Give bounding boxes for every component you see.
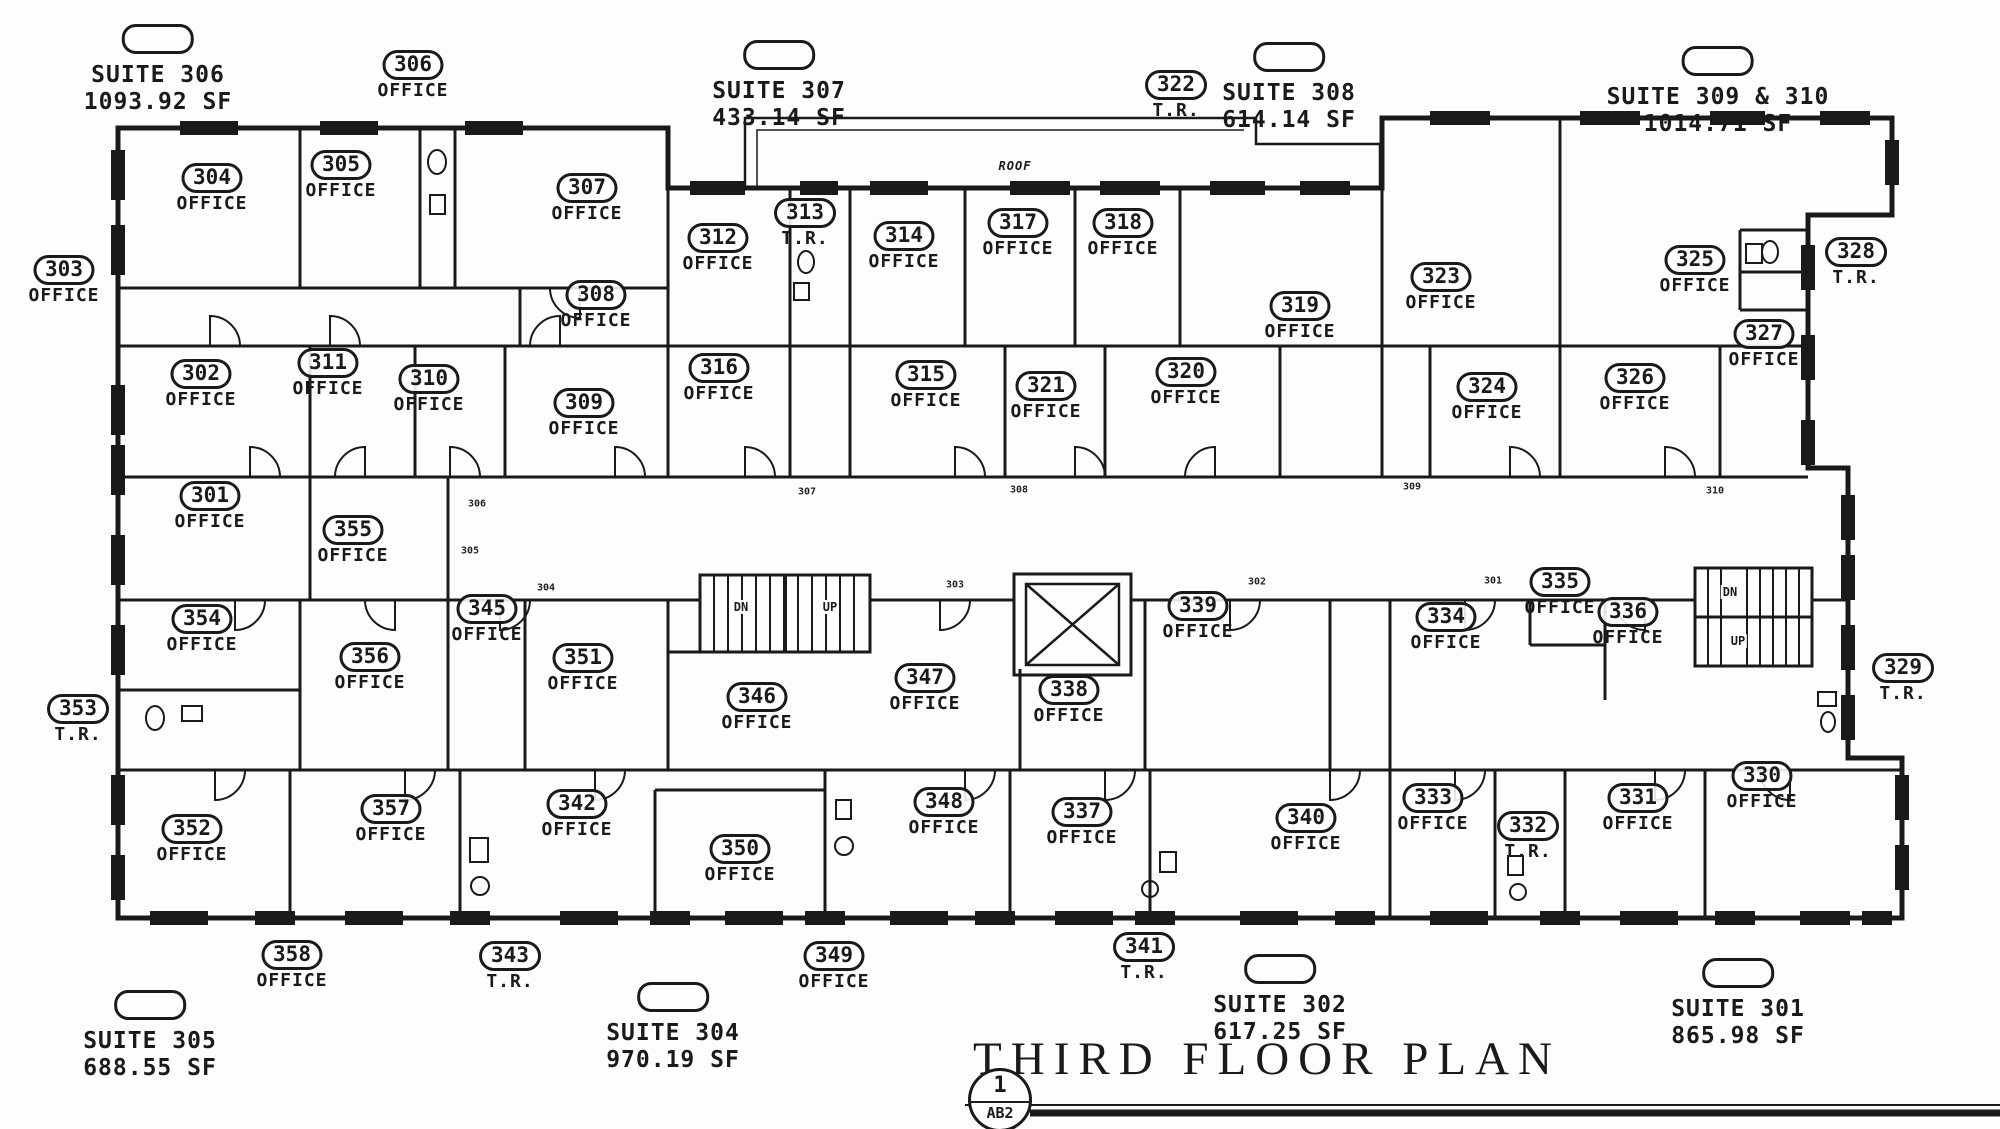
room-type: OFFICE bbox=[1264, 323, 1335, 341]
roof-label: ROOF bbox=[999, 159, 1032, 173]
room-type: OFFICE bbox=[174, 513, 245, 531]
room-label-317: 317OFFICE bbox=[982, 208, 1053, 258]
room-number-pill: 311 bbox=[297, 348, 359, 378]
sheet-number-badge: 1 AB2 bbox=[968, 1068, 1032, 1129]
room-number-pill: 328 bbox=[1825, 237, 1887, 267]
suite-pill bbox=[1702, 958, 1774, 988]
room-type: OFFICE bbox=[868, 253, 939, 271]
room-label-301: 301OFFICE bbox=[174, 481, 245, 531]
room-label-318: 318OFFICE bbox=[1087, 208, 1158, 258]
suite-pill bbox=[1244, 954, 1316, 984]
room-number-pill: 310 bbox=[398, 364, 460, 394]
room-number-pill: 333 bbox=[1402, 783, 1464, 813]
suite-area: 614.14 SF bbox=[1222, 107, 1356, 134]
floor-plan-page: ROOF 304OFFICE305OFFICE307OFFICE308OFFIC… bbox=[0, 0, 2000, 1129]
room-type: OFFICE bbox=[551, 205, 622, 223]
room-number-pill: 326 bbox=[1604, 363, 1666, 393]
room-type: OFFICE bbox=[28, 287, 99, 305]
room-label-339: 339OFFICE bbox=[1162, 591, 1233, 641]
suite-label-suite-301: SUITE 301865.98 SF bbox=[1671, 958, 1805, 1050]
suite-area: 433.14 SF bbox=[712, 105, 846, 132]
corridor-tag-310: 310 bbox=[1706, 486, 1724, 497]
room-type: T.R. bbox=[47, 726, 109, 744]
room-number-pill: 308 bbox=[565, 280, 627, 310]
stair-direction-label: DN bbox=[1721, 585, 1739, 599]
room-label-304: 304OFFICE bbox=[176, 163, 247, 213]
room-label-356: 356OFFICE bbox=[334, 642, 405, 692]
corridor-tag-308: 308 bbox=[1010, 485, 1028, 496]
room-number-pill: 314 bbox=[873, 221, 935, 251]
room-number-pill: 349 bbox=[803, 941, 865, 971]
room-type: OFFICE bbox=[908, 819, 979, 837]
room-type: OFFICE bbox=[1728, 351, 1799, 369]
room-number-pill: 332 bbox=[1497, 811, 1559, 841]
page-title: THIRD FLOOR PLAN bbox=[973, 1032, 1561, 1086]
room-type: OFFICE bbox=[1602, 815, 1673, 833]
corridor-tag-303: 303 bbox=[946, 580, 964, 591]
corridor-tag-301: 301 bbox=[1484, 576, 1502, 587]
room-type: OFFICE bbox=[1033, 707, 1104, 725]
room-number-pill: 350 bbox=[709, 834, 771, 864]
room-type: OFFICE bbox=[1046, 829, 1117, 847]
room-label-309: 309OFFICE bbox=[548, 388, 619, 438]
stair-direction-label: UP bbox=[821, 600, 839, 614]
room-type: OFFICE bbox=[889, 695, 960, 713]
suite-pill bbox=[1682, 46, 1754, 76]
suite-label-suite-309-310: SUITE 309 & 3101014.71 SF bbox=[1607, 46, 1830, 138]
room-type: OFFICE bbox=[890, 392, 961, 410]
room-number-pill: 323 bbox=[1410, 262, 1472, 292]
room-number-pill: 358 bbox=[261, 940, 323, 970]
room-number-pill: 313 bbox=[774, 198, 836, 228]
sheet-reference: AB2 bbox=[971, 1101, 1029, 1123]
room-number-pill: 320 bbox=[1155, 357, 1217, 387]
room-label-338: 338OFFICE bbox=[1033, 675, 1104, 725]
room-number-pill: 337 bbox=[1051, 797, 1113, 827]
room-number-pill: 356 bbox=[339, 642, 401, 672]
room-number-pill: 345 bbox=[456, 594, 518, 624]
suite-area: 1093.92 SF bbox=[84, 89, 232, 116]
room-type: OFFICE bbox=[1726, 793, 1797, 811]
room-label-303: 303OFFICE bbox=[28, 255, 99, 305]
corridor-tag-307: 307 bbox=[798, 487, 816, 498]
suite-label-suite-307: SUITE 307433.14 SF bbox=[712, 40, 846, 132]
room-number-pill: 315 bbox=[895, 360, 957, 390]
suite-label-suite-304: SUITE 304970.19 SF bbox=[606, 982, 740, 1074]
room-label-357: 357OFFICE bbox=[355, 794, 426, 844]
room-type: OFFICE bbox=[176, 195, 247, 213]
room-number-pill: 331 bbox=[1607, 783, 1669, 813]
room-label-333: 333OFFICE bbox=[1397, 783, 1468, 833]
room-number-pill: 341 bbox=[1113, 932, 1175, 962]
room-number-pill: 304 bbox=[181, 163, 243, 193]
room-label-320: 320OFFICE bbox=[1150, 357, 1221, 407]
room-type: OFFICE bbox=[704, 866, 775, 884]
room-type: OFFICE bbox=[798, 973, 869, 991]
room-type: T.R. bbox=[479, 973, 541, 991]
room-type: OFFICE bbox=[355, 826, 426, 844]
room-label-353: 353T.R. bbox=[47, 694, 109, 744]
room-number-pill: 306 bbox=[382, 50, 444, 80]
room-label-342: 342OFFICE bbox=[541, 789, 612, 839]
room-label-348: 348OFFICE bbox=[908, 787, 979, 837]
room-number-pill: 338 bbox=[1038, 675, 1100, 705]
corridor-tag-304: 304 bbox=[537, 583, 555, 594]
room-type: T.R. bbox=[1872, 685, 1934, 703]
room-number-pill: 303 bbox=[33, 255, 95, 285]
suite-name: SUITE 309 & 310 bbox=[1607, 84, 1830, 111]
suite-pill bbox=[743, 40, 815, 70]
room-type: OFFICE bbox=[377, 82, 448, 100]
room-number-pill: 330 bbox=[1731, 761, 1793, 791]
room-number-pill: 327 bbox=[1733, 319, 1795, 349]
room-label-346: 346OFFICE bbox=[721, 682, 792, 732]
room-type: T.R. bbox=[1145, 102, 1207, 120]
room-label-312: 312OFFICE bbox=[682, 223, 753, 273]
room-label-343: 343T.R. bbox=[479, 941, 541, 991]
room-number-pill: 353 bbox=[47, 694, 109, 724]
room-type: OFFICE bbox=[393, 396, 464, 414]
room-number-pill: 354 bbox=[171, 604, 233, 634]
suite-pill bbox=[1253, 42, 1325, 72]
room-label-327: 327OFFICE bbox=[1728, 319, 1799, 369]
room-type: OFFICE bbox=[560, 312, 631, 330]
room-label-314: 314OFFICE bbox=[868, 221, 939, 271]
room-label-324: 324OFFICE bbox=[1451, 372, 1522, 422]
suite-area: 688.55 SF bbox=[83, 1055, 217, 1082]
suite-pill bbox=[114, 990, 186, 1020]
room-type: OFFICE bbox=[1397, 815, 1468, 833]
suite-name: SUITE 302 bbox=[1213, 992, 1347, 1019]
room-type: T.R. bbox=[774, 230, 836, 248]
room-label-319: 319OFFICE bbox=[1264, 291, 1335, 341]
room-type: OFFICE bbox=[1410, 634, 1481, 652]
room-type: OFFICE bbox=[548, 420, 619, 438]
room-number-pill: 319 bbox=[1269, 291, 1331, 321]
room-label-311: 311OFFICE bbox=[292, 348, 363, 398]
room-label-322: 322T.R. bbox=[1145, 70, 1207, 120]
room-number-pill: 343 bbox=[479, 941, 541, 971]
room-type: OFFICE bbox=[1010, 403, 1081, 421]
room-number-pill: 336 bbox=[1597, 597, 1659, 627]
room-number-pill: 342 bbox=[546, 789, 608, 819]
suite-pill bbox=[637, 982, 709, 1012]
suite-name: SUITE 307 bbox=[712, 78, 846, 105]
room-label-341: 341T.R. bbox=[1113, 932, 1175, 982]
room-number-pill: 302 bbox=[170, 359, 232, 389]
room-label-355: 355OFFICE bbox=[317, 515, 388, 565]
suite-name: SUITE 305 bbox=[83, 1028, 217, 1055]
room-type: T.R. bbox=[1497, 843, 1559, 861]
room-number-pill: 346 bbox=[726, 682, 788, 712]
suite-area: 865.98 SF bbox=[1671, 1023, 1805, 1050]
room-type: T.R. bbox=[1113, 964, 1175, 982]
suite-pill bbox=[122, 24, 194, 54]
room-label-305: 305OFFICE bbox=[305, 150, 376, 200]
room-number-pill: 324 bbox=[1456, 372, 1518, 402]
room-type: OFFICE bbox=[305, 182, 376, 200]
room-number-pill: 312 bbox=[687, 223, 749, 253]
room-type: OFFICE bbox=[982, 240, 1053, 258]
room-type: OFFICE bbox=[165, 391, 236, 409]
room-label-332: 332T.R. bbox=[1497, 811, 1559, 861]
room-number-pill: 321 bbox=[1015, 371, 1077, 401]
room-number-pill: 352 bbox=[161, 814, 223, 844]
room-label-331: 331OFFICE bbox=[1602, 783, 1673, 833]
room-type: OFFICE bbox=[1451, 404, 1522, 422]
room-number-pill: 325 bbox=[1664, 245, 1726, 275]
room-type: OFFICE bbox=[541, 821, 612, 839]
room-number-pill: 335 bbox=[1529, 567, 1591, 597]
room-type: OFFICE bbox=[1270, 835, 1341, 853]
room-label-325: 325OFFICE bbox=[1659, 245, 1730, 295]
room-type: OFFICE bbox=[166, 636, 237, 654]
room-type: OFFICE bbox=[334, 674, 405, 692]
room-number-pill: 329 bbox=[1872, 653, 1934, 683]
room-label-335: 335OFFICE bbox=[1524, 567, 1595, 617]
room-type: OFFICE bbox=[683, 385, 754, 403]
room-label-321: 321OFFICE bbox=[1010, 371, 1081, 421]
room-number-pill: 351 bbox=[552, 643, 614, 673]
room-type: OFFICE bbox=[1659, 277, 1730, 295]
room-number-pill: 322 bbox=[1145, 70, 1207, 100]
room-type: OFFICE bbox=[292, 380, 363, 398]
room-label-302: 302OFFICE bbox=[165, 359, 236, 409]
room-type: OFFICE bbox=[1599, 395, 1670, 413]
room-label-334: 334OFFICE bbox=[1410, 602, 1481, 652]
room-number-pill: 355 bbox=[322, 515, 384, 545]
room-label-329: 329T.R. bbox=[1872, 653, 1934, 703]
suite-name: SUITE 304 bbox=[606, 1020, 740, 1047]
room-label-330: 330OFFICE bbox=[1726, 761, 1797, 811]
room-label-349: 349OFFICE bbox=[798, 941, 869, 991]
room-label-308: 308OFFICE bbox=[560, 280, 631, 330]
room-type: OFFICE bbox=[317, 547, 388, 565]
corridor-tag-309: 309 bbox=[1403, 482, 1421, 493]
suite-label-suite-306: SUITE 3061093.92 SF bbox=[84, 24, 232, 116]
room-number-pill: 305 bbox=[310, 150, 372, 180]
suite-name: SUITE 301 bbox=[1671, 996, 1805, 1023]
room-label-347: 347OFFICE bbox=[889, 663, 960, 713]
room-number-pill: 347 bbox=[894, 663, 956, 693]
room-type: OFFICE bbox=[1405, 294, 1476, 312]
suite-name: SUITE 308 bbox=[1222, 80, 1356, 107]
suite-label-suite-305: SUITE 305688.55 SF bbox=[83, 990, 217, 1082]
room-label-340: 340OFFICE bbox=[1270, 803, 1341, 853]
room-label-306: 306OFFICE bbox=[377, 50, 448, 100]
room-label-315: 315OFFICE bbox=[890, 360, 961, 410]
room-number-pill: 317 bbox=[987, 208, 1049, 238]
suite-area: 1014.71 SF bbox=[1607, 111, 1830, 138]
room-type: OFFICE bbox=[451, 626, 522, 644]
room-number-pill: 309 bbox=[553, 388, 615, 418]
stair-direction-label: UP bbox=[1729, 634, 1747, 648]
room-type: OFFICE bbox=[1162, 623, 1233, 641]
room-type: T.R. bbox=[1825, 269, 1887, 287]
room-number-pill: 339 bbox=[1167, 591, 1229, 621]
room-label-337: 337OFFICE bbox=[1046, 797, 1117, 847]
room-number-pill: 357 bbox=[360, 794, 422, 824]
room-number-pill: 316 bbox=[688, 353, 750, 383]
room-number-pill: 334 bbox=[1415, 602, 1477, 632]
room-label-326: 326OFFICE bbox=[1599, 363, 1670, 413]
room-label-313: 313T.R. bbox=[774, 198, 836, 248]
room-type: OFFICE bbox=[1592, 629, 1663, 647]
room-type: OFFICE bbox=[721, 714, 792, 732]
room-type: OFFICE bbox=[1524, 599, 1595, 617]
suite-area: 970.19 SF bbox=[606, 1047, 740, 1074]
room-label-351: 351OFFICE bbox=[547, 643, 618, 693]
corridor-tag-306: 306 bbox=[468, 499, 486, 510]
room-label-328: 328T.R. bbox=[1825, 237, 1887, 287]
corridor-tag-302: 302 bbox=[1248, 577, 1266, 588]
room-label-358: 358OFFICE bbox=[256, 940, 327, 990]
room-number-pill: 348 bbox=[913, 787, 975, 817]
room-label-350: 350OFFICE bbox=[704, 834, 775, 884]
room-label-323: 323OFFICE bbox=[1405, 262, 1476, 312]
room-label-345: 345OFFICE bbox=[451, 594, 522, 644]
room-number-pill: 340 bbox=[1275, 803, 1337, 833]
room-number-pill: 301 bbox=[179, 481, 241, 511]
suite-name: SUITE 306 bbox=[84, 62, 232, 89]
room-type: OFFICE bbox=[682, 255, 753, 273]
room-label-336: 336OFFICE bbox=[1592, 597, 1663, 647]
room-type: OFFICE bbox=[547, 675, 618, 693]
corridor-tag-305: 305 bbox=[461, 546, 479, 557]
room-type: OFFICE bbox=[256, 972, 327, 990]
room-label-352: 352OFFICE bbox=[156, 814, 227, 864]
suite-label-suite-308: SUITE 308614.14 SF bbox=[1222, 42, 1356, 134]
room-label-316: 316OFFICE bbox=[683, 353, 754, 403]
room-number-pill: 318 bbox=[1092, 208, 1154, 238]
room-label-307: 307OFFICE bbox=[551, 173, 622, 223]
stair-direction-label: DN bbox=[732, 600, 750, 614]
room-type: OFFICE bbox=[1150, 389, 1221, 407]
room-label-310: 310OFFICE bbox=[393, 364, 464, 414]
room-label-354: 354OFFICE bbox=[166, 604, 237, 654]
sheet-number: 1 bbox=[971, 1071, 1029, 1101]
room-type: OFFICE bbox=[156, 846, 227, 864]
room-number-pill: 307 bbox=[556, 173, 618, 203]
room-type: OFFICE bbox=[1087, 240, 1158, 258]
